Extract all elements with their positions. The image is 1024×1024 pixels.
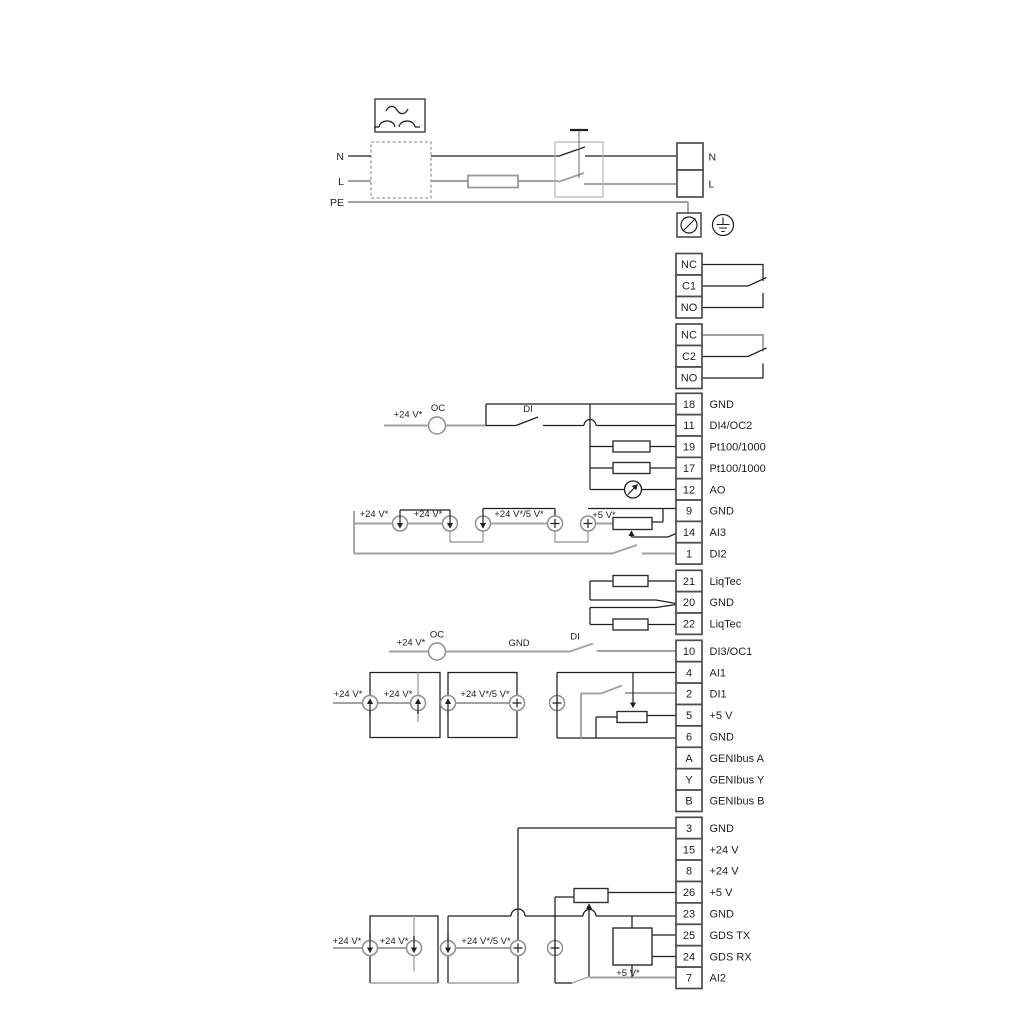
terminal-number: 20 bbox=[683, 597, 695, 609]
terminal-label: AI2 bbox=[710, 973, 727, 985]
terminal-label: +24 V bbox=[710, 866, 740, 878]
terminal-number: 26 bbox=[683, 887, 695, 899]
terminal-number: 3 bbox=[686, 823, 692, 835]
pe-screw-terminal bbox=[677, 213, 701, 237]
terminal-number: NC bbox=[681, 259, 697, 271]
n-switch-blade bbox=[559, 147, 585, 156]
di3-switch-blade bbox=[570, 644, 593, 652]
io1-wiring: +24 V* OC DI +24 V* +24 V* +24 bbox=[354, 403, 676, 554]
terminal-label: +5 V bbox=[710, 710, 734, 722]
terminal-number: 18 bbox=[683, 399, 695, 411]
terminal-label: DI4/OC2 bbox=[710, 420, 753, 432]
terminal-row-NO: NO bbox=[676, 297, 702, 319]
terminal-number: 14 bbox=[683, 527, 695, 539]
main-switch bbox=[555, 130, 603, 197]
wiring-diagram: N L PE bbox=[0, 0, 1024, 1024]
terminal-row-12: 12AO bbox=[676, 479, 726, 500]
terminal-label: GDS TX bbox=[710, 930, 751, 942]
terminal-number: 8 bbox=[686, 866, 692, 878]
terminal-number: 15 bbox=[683, 844, 695, 856]
terminal-label: GDS RX bbox=[710, 951, 753, 963]
terminal-number: 12 bbox=[683, 484, 695, 496]
terminal-row-20: 20GND bbox=[676, 592, 734, 613]
analog-output-meter-icon bbox=[590, 481, 676, 498]
terminal-row-NC: NC bbox=[676, 254, 702, 276]
potentiometer bbox=[613, 509, 676, 538]
l-switch-blade bbox=[558, 173, 584, 182]
terminal-number: 10 bbox=[683, 646, 695, 658]
power-terminal: NL bbox=[677, 143, 716, 197]
terminal-row-26: 26+5 V bbox=[676, 882, 733, 903]
di4-wire bbox=[486, 404, 676, 426]
pt100-resistor-17 bbox=[590, 463, 676, 474]
terminal-number: NC bbox=[681, 330, 697, 342]
terminal-number: A bbox=[685, 753, 693, 765]
label-plus24v: +24 V* bbox=[394, 410, 423, 421]
terminal-number: NO bbox=[681, 302, 698, 314]
terminal-row-5: 5+5 V bbox=[676, 705, 733, 726]
terminal-label: N bbox=[709, 151, 717, 163]
terminal-row-1: 1DI2 bbox=[676, 543, 727, 564]
label-plus24v: +24 V* bbox=[334, 689, 363, 700]
terminal-label: GENIbus A bbox=[710, 753, 765, 765]
label-gnd: GND bbox=[508, 638, 529, 649]
liqtec-block: 21LiqTec20GND22LiqTec bbox=[676, 570, 742, 634]
terminal-label: GND bbox=[710, 506, 735, 518]
terminal-row-B: BGENIbus B bbox=[676, 790, 765, 811]
terminal-row-6: 6GND bbox=[676, 726, 734, 747]
label-plus24v-or-5v: +24 V*/5 V* bbox=[460, 689, 510, 700]
terminal-label: +24 V bbox=[710, 844, 740, 856]
open-collector-icon bbox=[429, 417, 446, 434]
io-block-1: 18GND11DI4/OC219Pt100/100017Pt100/100012… bbox=[676, 393, 766, 564]
terminal-row-19: 19Pt100/1000 bbox=[676, 436, 766, 457]
terminal-row-11: 11DI4/OC2 bbox=[676, 415, 752, 436]
terminal-row-23: 23GND bbox=[676, 903, 734, 924]
terminal-row-2: 2DI1 bbox=[676, 683, 727, 704]
terminal-label: +5 V bbox=[710, 887, 734, 899]
voltage-source-icon bbox=[510, 696, 525, 711]
terminal-label: GENIbus B bbox=[710, 796, 765, 808]
open-collector-icon bbox=[429, 643, 446, 660]
label-n-in: N bbox=[336, 151, 344, 163]
fuse bbox=[468, 176, 518, 188]
label-l-in: L bbox=[338, 176, 344, 188]
relay-2-contact bbox=[702, 335, 767, 378]
option-cell bbox=[370, 916, 438, 983]
terminal-label: AI3 bbox=[710, 527, 727, 539]
label-plus24v-or-5v: +24 V*/5 V* bbox=[461, 936, 511, 947]
u-link bbox=[555, 531, 588, 542]
gds-sensor: +5 V* bbox=[613, 916, 676, 979]
terminal-number: 21 bbox=[683, 576, 695, 588]
label-plus24v: +24 V* bbox=[397, 638, 426, 649]
terminal-number: 1 bbox=[686, 548, 692, 560]
terminal-number: 9 bbox=[686, 506, 692, 518]
label-di: DI bbox=[523, 404, 533, 415]
terminal-label: DI2 bbox=[710, 548, 727, 560]
terminal-row-NC: NC bbox=[676, 324, 702, 346]
di2-switch-blade bbox=[612, 545, 637, 554]
terminal-label: LiqTec bbox=[710, 619, 742, 631]
io-block-3: 3GND15+24 V8+24 V26+5 V23GND25GDS TX24GD… bbox=[676, 817, 752, 988]
terminal-label: AI1 bbox=[710, 667, 727, 679]
terminal-label: Pt100/1000 bbox=[710, 442, 766, 454]
terminal-row-8: 8+24 V bbox=[676, 860, 739, 881]
label-plus24v: +24 V* bbox=[414, 509, 443, 520]
pot-left-wire bbox=[555, 897, 574, 916]
wiring-diagram-svg: N L PE bbox=[0, 0, 1024, 1024]
terminal-number: 4 bbox=[686, 667, 692, 679]
terminal-label: GND bbox=[710, 823, 735, 835]
pot-gnd-wire bbox=[596, 717, 617, 738]
ai3-wire bbox=[632, 534, 677, 538]
terminal-label: GND bbox=[710, 399, 735, 411]
terminal-row-L: L bbox=[677, 170, 715, 197]
terminal-row-14: 14AI3 bbox=[676, 521, 726, 542]
liqtec-sensor-22 bbox=[613, 619, 648, 630]
terminal-label: GND bbox=[710, 732, 735, 744]
filter-box-dashed bbox=[371, 142, 431, 198]
label-plus24v: +24 V* bbox=[360, 509, 389, 520]
relay-2: NCC2NO bbox=[676, 324, 702, 389]
option-cell bbox=[448, 673, 517, 738]
potentiometer bbox=[596, 673, 676, 739]
terminal-number: 24 bbox=[683, 951, 695, 963]
power-section: N L PE bbox=[330, 99, 734, 237]
label-plus5v: +5 V* bbox=[616, 968, 640, 979]
pt100-resistor-19 bbox=[590, 441, 676, 452]
terminal-number: B bbox=[685, 796, 692, 808]
label-plus24v: +24 V* bbox=[384, 689, 413, 700]
terminal-label: LiqTec bbox=[710, 576, 742, 588]
voltage-source-icon bbox=[548, 509, 563, 532]
terminal-number: C2 bbox=[682, 351, 696, 363]
ai2-blade bbox=[572, 977, 590, 984]
terminal-row-7: 7AI2 bbox=[676, 967, 726, 988]
label-oc: OC bbox=[430, 630, 444, 641]
terminal-row-22: 22LiqTec bbox=[676, 613, 742, 634]
io-block-2: 10DI3/OC14AI12DI15+5 V6GNDAGENIbus AYGEN… bbox=[676, 640, 765, 811]
terminal-number: 6 bbox=[686, 732, 692, 744]
terminal-row-17: 17Pt100/1000 bbox=[676, 457, 766, 478]
terminal-number: 23 bbox=[683, 909, 695, 921]
terminal-number: 5 bbox=[686, 710, 692, 722]
terminal-number: 19 bbox=[683, 442, 695, 454]
terminal-number: 7 bbox=[686, 973, 692, 985]
terminal-row-NO: NO bbox=[676, 367, 702, 389]
terminal-label: GND bbox=[710, 597, 735, 609]
sensor-option-row-1: +24 V* +24 V* +24 V*/5 V* +5 V* bbox=[354, 509, 676, 554]
u-link bbox=[450, 531, 483, 542]
relay-1: NCC1NO bbox=[676, 254, 702, 319]
label-plus24v-or-5v: +24 V*/5 V* bbox=[494, 509, 544, 520]
ac-source-icon bbox=[374, 99, 425, 132]
sensor-option-row-2: +24 V* +24 V* +24 V*/5 V* bbox=[333, 673, 676, 739]
terminal-row-9: 9GND bbox=[676, 500, 734, 521]
terminal-number: C1 bbox=[682, 281, 696, 293]
terminal-label: Pt100/1000 bbox=[710, 463, 766, 475]
terminal-label: DI1 bbox=[710, 689, 727, 701]
di1-switch-blade bbox=[601, 686, 622, 694]
terminal-row-C1: C1 bbox=[676, 275, 702, 297]
label-plus24v: +24 V* bbox=[333, 936, 362, 947]
terminal-label: L bbox=[709, 178, 715, 190]
terminal-row-10: 10DI3/OC1 bbox=[676, 640, 752, 661]
io2-wiring: +24 V* OC GND DI +24 V* +24 V* +24 V*/5 … bbox=[333, 630, 676, 739]
di4-switch-blade bbox=[516, 417, 538, 426]
terminal-row-4: 4AI1 bbox=[676, 662, 726, 683]
voltage-source-icon bbox=[511, 941, 526, 956]
terminal-row-24: 24GDS RX bbox=[676, 946, 752, 967]
terminal-row-3: 3GND bbox=[676, 817, 734, 838]
earth-ground-icon bbox=[713, 215, 734, 236]
terminal-row-C2: C2 bbox=[676, 346, 702, 368]
liqtec-sensor-21 bbox=[613, 576, 648, 587]
pe-wire bbox=[348, 202, 688, 213]
terminal-row-N: N bbox=[677, 143, 716, 170]
label-oc: OC bbox=[431, 403, 445, 414]
terminal-row-A: AGENIbus A bbox=[676, 747, 765, 768]
terminal-label: AO bbox=[710, 484, 726, 496]
terminal-row-15: 15+24 V bbox=[676, 839, 739, 860]
label-plus24v: +24 V* bbox=[380, 936, 409, 947]
terminal-number: 17 bbox=[683, 463, 695, 475]
terminal-row-21: 21LiqTec bbox=[676, 570, 742, 591]
terminal-label: GND bbox=[710, 909, 735, 921]
terminal-label: DI3/OC1 bbox=[710, 646, 753, 658]
option-cell bbox=[370, 673, 440, 738]
label-di: DI bbox=[570, 632, 580, 643]
terminal-number: 11 bbox=[683, 420, 694, 432]
relay-1-contact bbox=[702, 265, 767, 308]
terminal-number: 2 bbox=[686, 689, 692, 701]
terminal-number: Y bbox=[685, 774, 693, 786]
terminal-number: 22 bbox=[683, 619, 695, 631]
terminal-number: NO bbox=[681, 373, 698, 385]
label-pe-in: PE bbox=[330, 197, 344, 209]
terminal-number: 25 bbox=[683, 930, 695, 942]
terminal-row-18: 18GND bbox=[676, 393, 734, 414]
terminal-label: GENIbus Y bbox=[710, 774, 765, 786]
io3-wiring: +24 V* +24 V* +24 V*/5 V* bbox=[333, 828, 676, 983]
terminal-row-25: 25GDS TX bbox=[676, 924, 751, 945]
terminal-row-Y: YGENIbus Y bbox=[676, 769, 765, 790]
voltage-source-icon bbox=[581, 516, 596, 531]
terminal-blocks: NLNCC1NONCC2NO18GND11DI4/OC219Pt100/1000… bbox=[676, 143, 766, 989]
liqtec-wiring bbox=[590, 576, 676, 631]
